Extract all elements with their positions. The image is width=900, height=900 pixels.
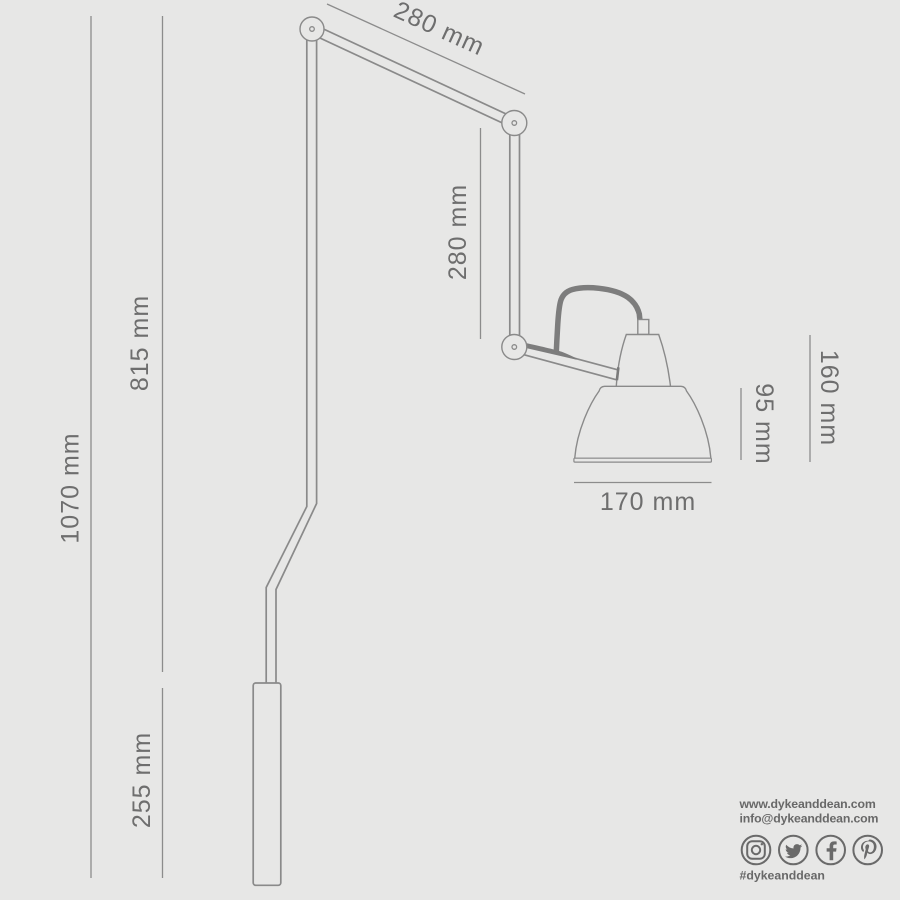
svg-text:170 mm: 170 mm xyxy=(600,488,696,516)
svg-text:www.dykeanddean.com: www.dykeanddean.com xyxy=(739,797,876,811)
svg-text:#dykeanddean: #dykeanddean xyxy=(740,868,825,882)
svg-text:info@dykeanddean.com: info@dykeanddean.com xyxy=(740,811,879,825)
svg-text:255 mm: 255 mm xyxy=(128,732,156,828)
svg-text:1070 mm: 1070 mm xyxy=(57,432,85,543)
svg-text:160 mm: 160 mm xyxy=(815,350,843,446)
svg-text:280 mm: 280 mm xyxy=(444,184,472,280)
svg-text:815 mm: 815 mm xyxy=(126,295,154,391)
svg-text:95 mm: 95 mm xyxy=(750,383,778,464)
